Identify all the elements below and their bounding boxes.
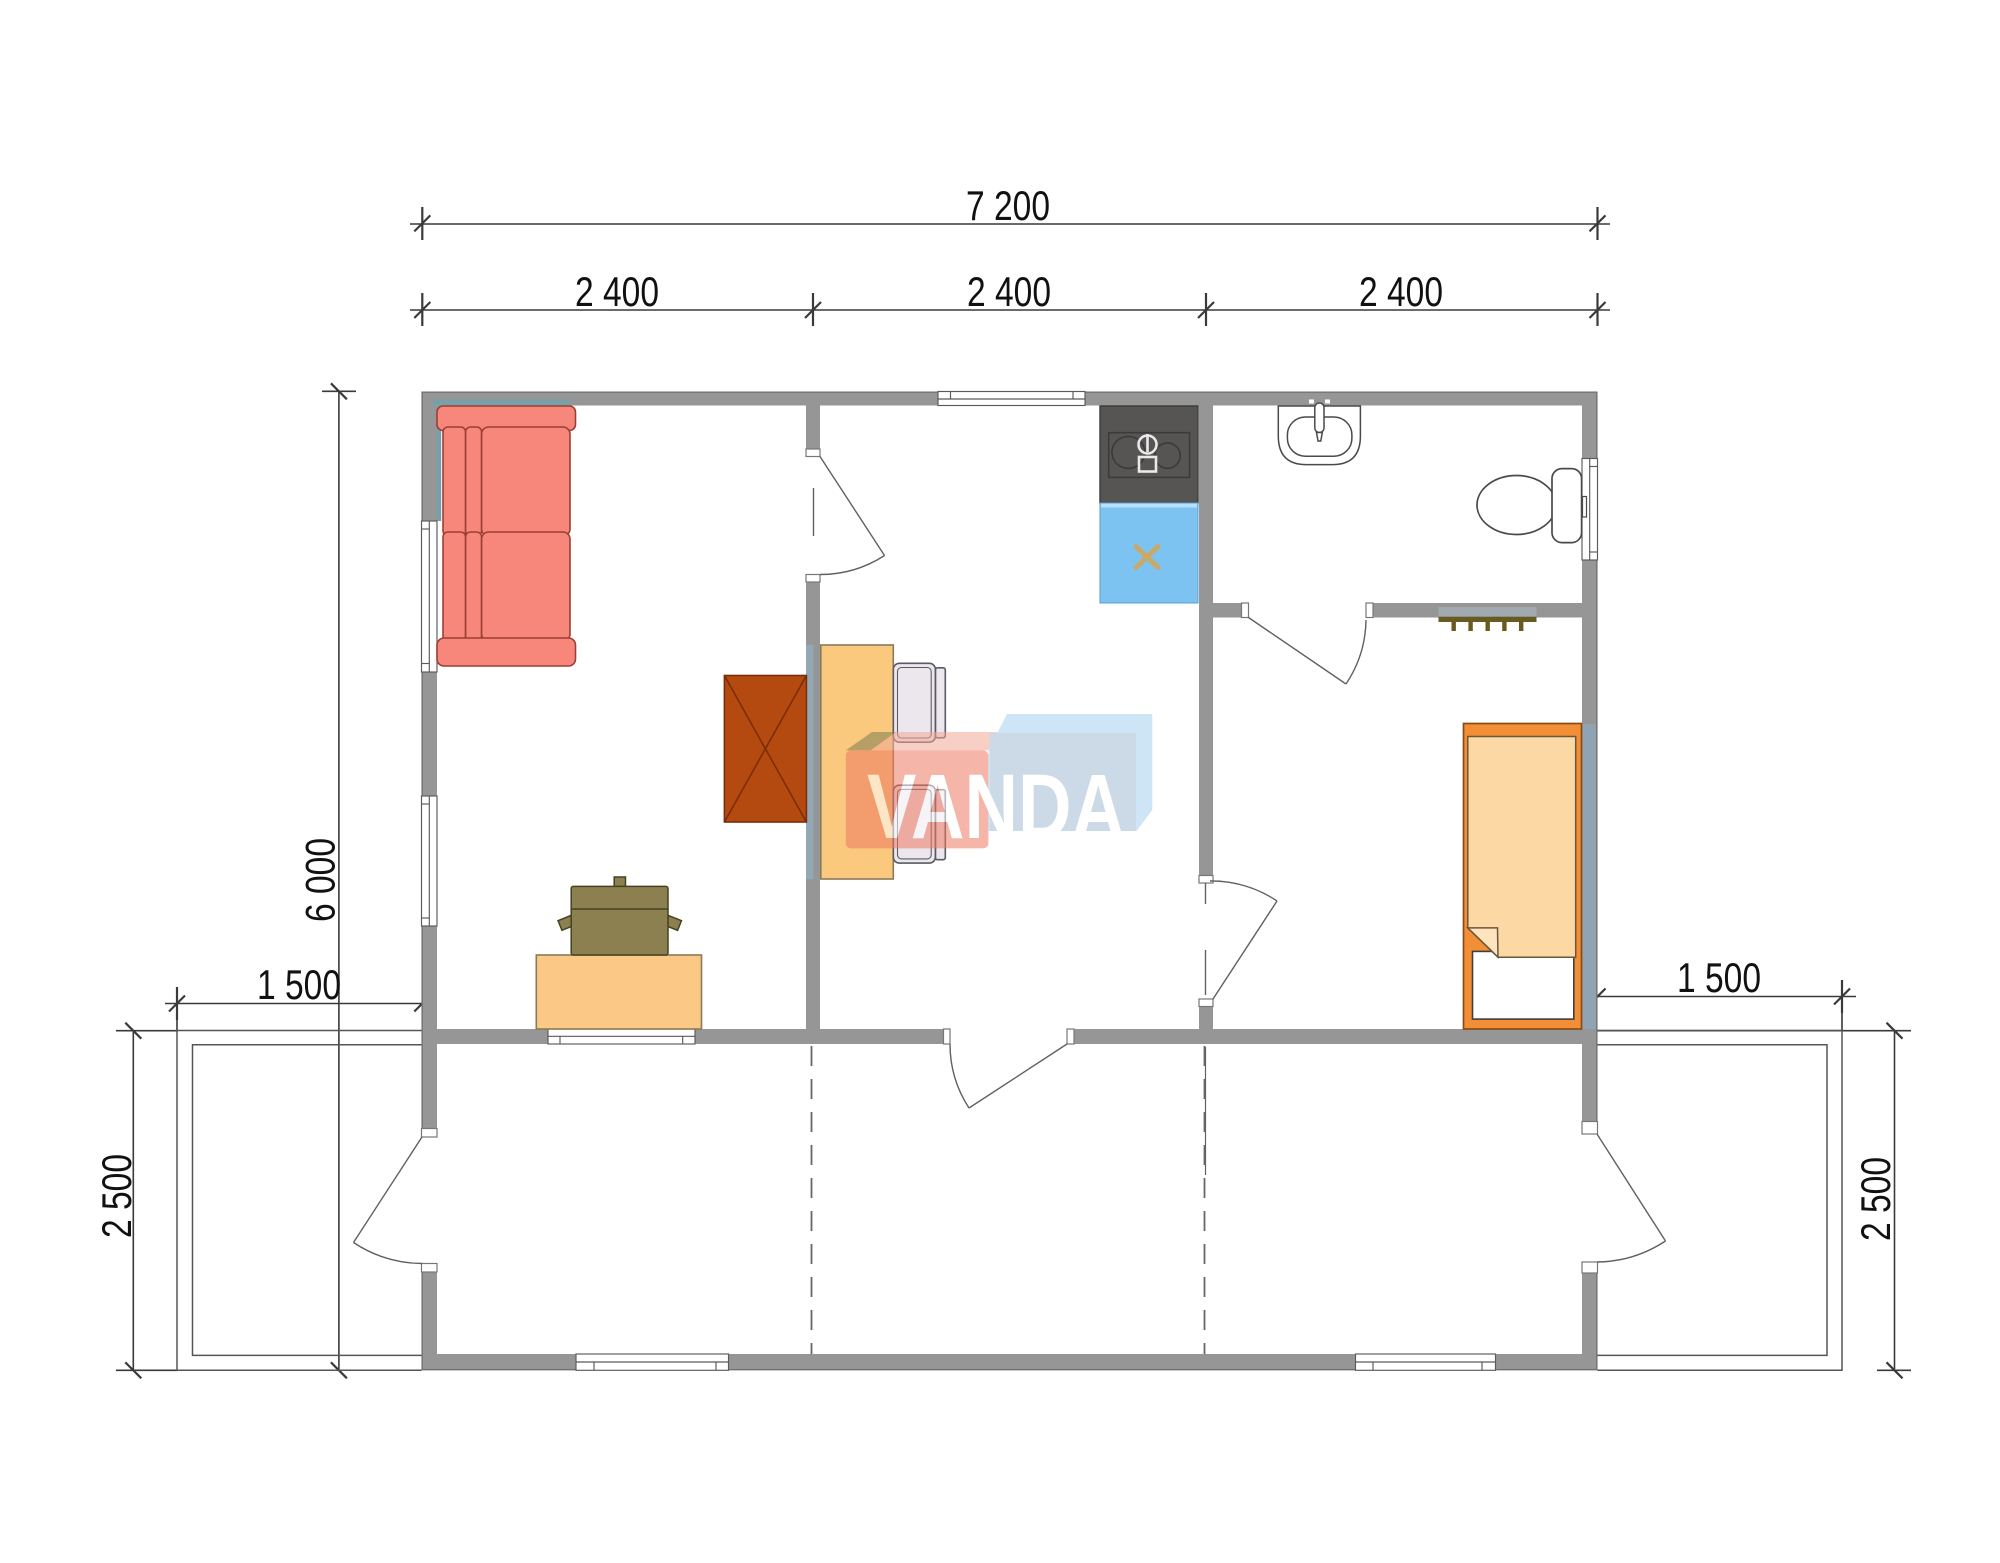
svg-text:1 500: 1 500	[257, 961, 341, 1008]
svg-text:6 000: 6 000	[297, 838, 344, 922]
svg-text:1 500: 1 500	[1677, 954, 1761, 1001]
svg-text:VANDA: VANDA	[867, 756, 1125, 858]
svg-text:2 400: 2 400	[1359, 268, 1443, 315]
svg-text:7 200: 7 200	[966, 182, 1050, 229]
svg-text:2 400: 2 400	[967, 268, 1051, 315]
svg-text:2 400: 2 400	[575, 268, 659, 315]
svg-text:2 500: 2 500	[93, 1154, 140, 1238]
svg-text:2 500: 2 500	[1852, 1157, 1899, 1241]
